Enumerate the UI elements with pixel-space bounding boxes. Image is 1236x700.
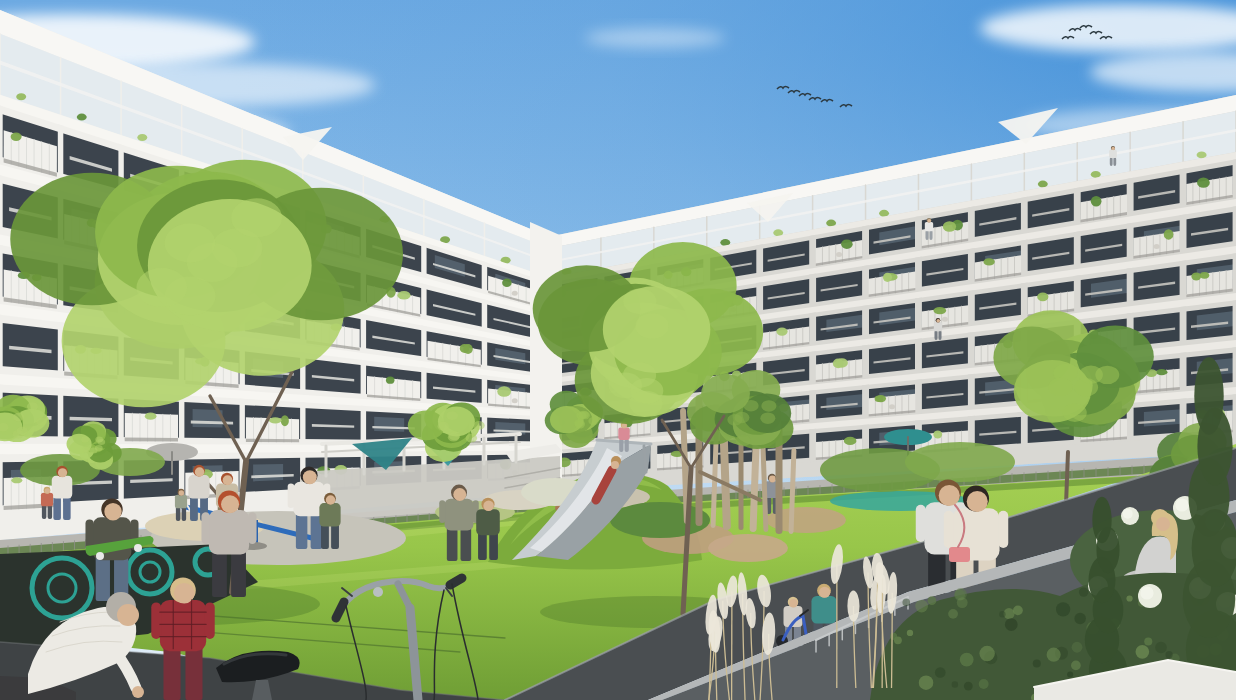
hedge-texture [935,667,946,678]
balcony-plant [386,377,395,384]
balcony-plant [841,239,853,248]
facade-pier [915,257,922,293]
balcony-plant [1156,369,1167,375]
facade-pier [756,244,763,277]
child-walking-leg [182,507,186,521]
balcony-resident-leg [934,330,937,340]
tree-canopy-light [13,413,24,421]
balcony-resident-torso [1109,150,1117,158]
tree-canopy-light [27,402,38,410]
father-helping-leg [447,527,458,561]
tree-canopy-light [95,445,103,451]
facade-pier [915,379,922,414]
balcony-furniture [836,252,842,257]
balcony-plant [502,278,512,287]
tree-canopy-light [81,437,89,443]
facade-pier [0,175,3,235]
tree-canopy-light [466,434,477,443]
facade-pier [1021,197,1028,235]
terrace-plant [77,114,87,121]
facade-pier [421,241,426,278]
balcony-resident-leg [929,230,932,240]
child-walking-leg [176,507,180,521]
boy-with-skateboard-leg [96,555,110,601]
facade-pier [1180,352,1187,392]
hedge-texture [957,597,968,608]
hedge-texture [1033,659,1041,667]
balcony-plant [145,412,157,419]
balcony-resident-leg [1113,157,1116,166]
facade-pier [1021,411,1028,448]
facade-pier [1233,253,1236,293]
child-center-leg [331,524,339,549]
hedge-texture [999,611,1005,617]
balcony-furniture [512,291,518,296]
father-helping-leg [461,527,472,561]
hedge-texture [1056,602,1070,616]
child-teal-shirt-torso [811,596,836,624]
facade-pier [1233,347,1236,387]
facade-pier [421,367,426,403]
woman-walking-torso [188,475,209,499]
tree-canopy-light [136,268,187,307]
hedge-texture [1005,618,1018,631]
skateboard-wheel [96,552,104,560]
woman-at-entrance-leg [63,496,71,520]
facade-pier [915,298,922,334]
mother-center-arm [288,483,295,508]
tree-canopy-light [736,435,751,447]
window-reflection [374,417,404,432]
child-at-entrance-torso [41,493,53,506]
green-bush [610,502,710,538]
tree-canopy-light [578,411,588,419]
balcony-shadow [125,438,178,442]
hedge-texture [1079,587,1088,596]
hedge-texture [948,609,958,619]
tree-canopy-light [82,447,90,453]
facade-pier [58,124,64,181]
facade-pier [300,402,305,444]
elderly-man-hand [132,686,144,698]
balcony-plant [463,344,473,354]
tree-canopy-light [630,378,663,404]
terrace-plant [1197,151,1207,158]
balcony-plant [776,328,787,336]
balcony-furniture [1154,244,1160,249]
balcony-resident-torso [925,222,933,231]
bicycle-bell [373,587,383,597]
girl-jumping-face [221,495,239,513]
balcony-plant [933,307,946,314]
facade-pier [0,454,3,513]
facade-pier [1180,260,1187,300]
child-center-torso [319,503,340,527]
child-center-face [326,495,336,505]
facade-pier [862,385,869,419]
girl-jumping-leg [212,549,227,597]
man-by-seesaw-face [223,475,233,485]
balcony-resident-leg [925,230,928,240]
balcony-plant [1191,272,1201,280]
tree-canopy-light [36,417,47,425]
courtyard-scene [0,0,1236,700]
woman-standing-cardigan-arm [916,505,926,542]
terrace-plant [16,93,26,100]
boy-helped-face [483,500,494,511]
balcony-resident-leg [938,330,941,340]
facade-pier [862,305,869,340]
hedge-texture [1144,637,1152,645]
father-helping-torso [445,499,474,531]
child-on-slide-top-leg [625,439,629,453]
boy-with-skateboard-face [104,503,121,520]
facade-pier [1127,178,1134,217]
seated-woman-face [1156,517,1170,531]
tree-canopy-light [734,412,749,424]
facade-pier [1074,231,1081,269]
hedge-texture [915,600,928,613]
mother-center-leg [296,512,307,549]
facade-pier [862,265,869,300]
facade-pier [968,248,975,285]
balcony-resident-leg [1110,157,1113,166]
facade-pier [809,429,816,462]
hedge-texture [1071,661,1081,671]
boy-red-plaid-shirt-leg [163,645,180,700]
facade-pier [361,314,367,354]
hedge-texture [1165,651,1172,658]
tan-grass-bush [708,534,788,562]
tree-canopy-light [1063,404,1087,422]
facade-pier [809,390,816,424]
window-reflection [1144,409,1182,426]
hydrangea-flowers [1175,498,1188,511]
sliding-child-face [611,461,619,469]
tree-canopy-light [231,198,282,237]
facade-pier [809,235,816,269]
facade-pier [1074,275,1081,313]
tree-canopy-light [165,224,216,263]
balcony-furniture [889,404,895,409]
facade-pier [482,299,488,332]
facade-pier [1127,268,1134,307]
tree-trunk [1066,452,1068,505]
child-center-leg [321,524,329,549]
facade-pier [1233,206,1236,246]
terrace-plant [1091,171,1101,178]
tree-canopy-light [438,422,449,431]
balcony-plant [1164,229,1174,239]
tree-canopy-light [744,400,759,412]
woman-at-entrance-torso [52,476,73,499]
facade-pier [0,105,3,165]
terrace-plant [1038,181,1048,188]
balcony-plant [1197,178,1210,188]
balcony-plant [883,273,892,282]
balcony-furniture [942,317,948,322]
cloud [585,28,725,48]
architectural-rendering [0,0,1236,700]
facade-pier [968,290,975,326]
facade-pier [968,206,975,243]
conifer-shrub [1194,357,1223,435]
facade-pier [1180,306,1187,346]
facade-pier [1233,300,1236,340]
skateboard-wheel [134,544,142,552]
tree-canopy-light [1048,378,1072,396]
hydrangea-flowers-front [1140,586,1153,599]
father-helping-arm [439,500,445,523]
facade-pier [421,325,426,361]
facade-pier [361,360,367,399]
balcony-plant [281,415,289,426]
facade-pier [240,399,245,445]
girl-jumping-leg [231,549,246,597]
slide-support [644,446,646,472]
hedge-texture [907,630,913,636]
facade-pier [0,315,3,374]
woman-at-entrance-leg [53,496,61,520]
facade-pier [968,332,975,368]
child-at-entrance-leg [48,505,52,519]
balcony-plant [933,430,942,438]
girl-jumping-arm [248,512,256,544]
child-at-entrance-leg [42,505,46,519]
facade-pier [1127,223,1134,262]
facade-pier [809,351,816,385]
facade-pier [756,282,763,315]
tree-canopy-light [623,289,656,315]
hedge-texture [979,679,989,689]
facade-pier [1021,240,1028,277]
boy-red-plaid-shirt-leg [185,645,202,700]
terrace-plant [137,134,147,141]
child-walking-torso [175,495,187,508]
balcony-plant [833,358,843,368]
balcony-plant [844,437,857,445]
hedge-texture [1074,613,1086,625]
hedge-texture [902,599,910,607]
hydrangea-flowers [1123,509,1133,519]
balcony-resident-face [936,319,940,323]
base-bush [905,442,1015,482]
balcony-resident-face [927,219,931,223]
hedge-texture [1136,645,1150,659]
toddler-with-trike-face [789,599,798,608]
balcony-plant [1091,196,1102,207]
child-teal-shirt-face [819,587,830,598]
tree-canopy-light [760,412,775,424]
facade-pier [421,283,426,320]
facade-pier [650,442,657,473]
woman-standing-dress-arm [998,511,1008,548]
hedge-texture [1047,648,1061,662]
facade-pier [968,374,975,410]
facade-pier [0,245,3,305]
window-reflection [253,464,283,481]
tree-canopy-light [473,421,484,430]
woman-walking-leg [190,496,198,521]
balcony-plant [943,221,956,232]
boy-helped-leg [478,532,487,560]
facade-pier [482,261,488,295]
hedge-texture [919,675,934,690]
tree-canopy-light [588,417,598,425]
facade-pier [809,312,816,346]
tree-canopy-light [95,437,103,443]
tree-canopy-light [574,419,584,427]
hedge-texture [1126,595,1132,601]
facade-pier [58,388,64,444]
balcony-plant [269,417,282,423]
woman-standing-dress-face [967,491,988,512]
balcony-shadow [246,439,299,443]
father-helping-face [453,488,466,501]
balcony-resident-torso [934,322,942,331]
hedge-texture [964,682,973,691]
facade-pier [1021,283,1028,320]
balcony-plant [1200,272,1209,279]
elderly-man-face [117,604,139,626]
woman-walking-face [195,467,205,477]
facade-pier [915,216,922,252]
facade-pier [1233,159,1236,199]
facade-pier [1233,394,1236,434]
hedge-texture [1155,642,1167,654]
balcony-plant [983,258,994,265]
boy-helped-torso [476,509,500,535]
tree-canopy-light [761,400,776,412]
tree-canopy-light [447,411,458,420]
woman-standing-dress-arm [944,511,954,548]
girl-jumping-torso [209,510,249,555]
hedge-texture [960,653,974,667]
facade-pier [862,225,869,260]
pink-handbag [949,547,970,562]
facade-pier [1074,187,1081,225]
child-near-poles-face [769,476,776,483]
facade-pier [482,375,488,408]
child-on-slide-top-torso [618,427,629,440]
balcony-resident-face [1112,147,1115,150]
tree-canopy-light [17,427,28,435]
balcony-furniture [512,398,518,403]
balcony-plant [11,477,22,483]
woman-standing-cardigan-face [939,485,960,506]
conifer-shrub [1092,497,1111,543]
hedge-texture [952,681,958,687]
boy-red-plaid-shirt-arm [151,602,161,639]
hedge-texture [1067,671,1073,677]
boy-red-plaid-shirt-arm [205,602,215,639]
tree-canopy-light [635,313,668,339]
hedge-texture [979,646,994,661]
facade-pier [1180,214,1187,254]
facade-pier [915,338,922,373]
mother-center-face [303,470,317,484]
facade-pier [482,337,488,370]
facade-pier [179,395,185,444]
tree-canopy-light [1079,366,1103,384]
facade-pier [862,345,869,380]
tree-canopy-light [448,433,459,442]
balcony-plant [497,386,511,396]
child-on-slide-top-leg [619,439,623,453]
boy-helped-leg [489,532,498,560]
hedge-texture [928,596,937,605]
balcony-plant [1037,293,1048,302]
balcony-plant [875,396,883,403]
child-at-entrance-face [45,488,50,493]
boy-red-plaid-shirt-torso [160,600,206,651]
girl-jumping-arm [201,512,209,544]
hedge-texture [890,633,897,640]
child-walking-face [179,490,184,495]
scene-layers [0,0,1236,700]
woman-at-entrance-face [58,468,67,477]
balcony-plant [397,291,410,300]
facade-pier [361,406,367,445]
facade-pier [809,274,816,308]
facade-pier [1180,168,1187,208]
hedge-texture [1072,642,1083,653]
balcony-plant [11,133,22,141]
